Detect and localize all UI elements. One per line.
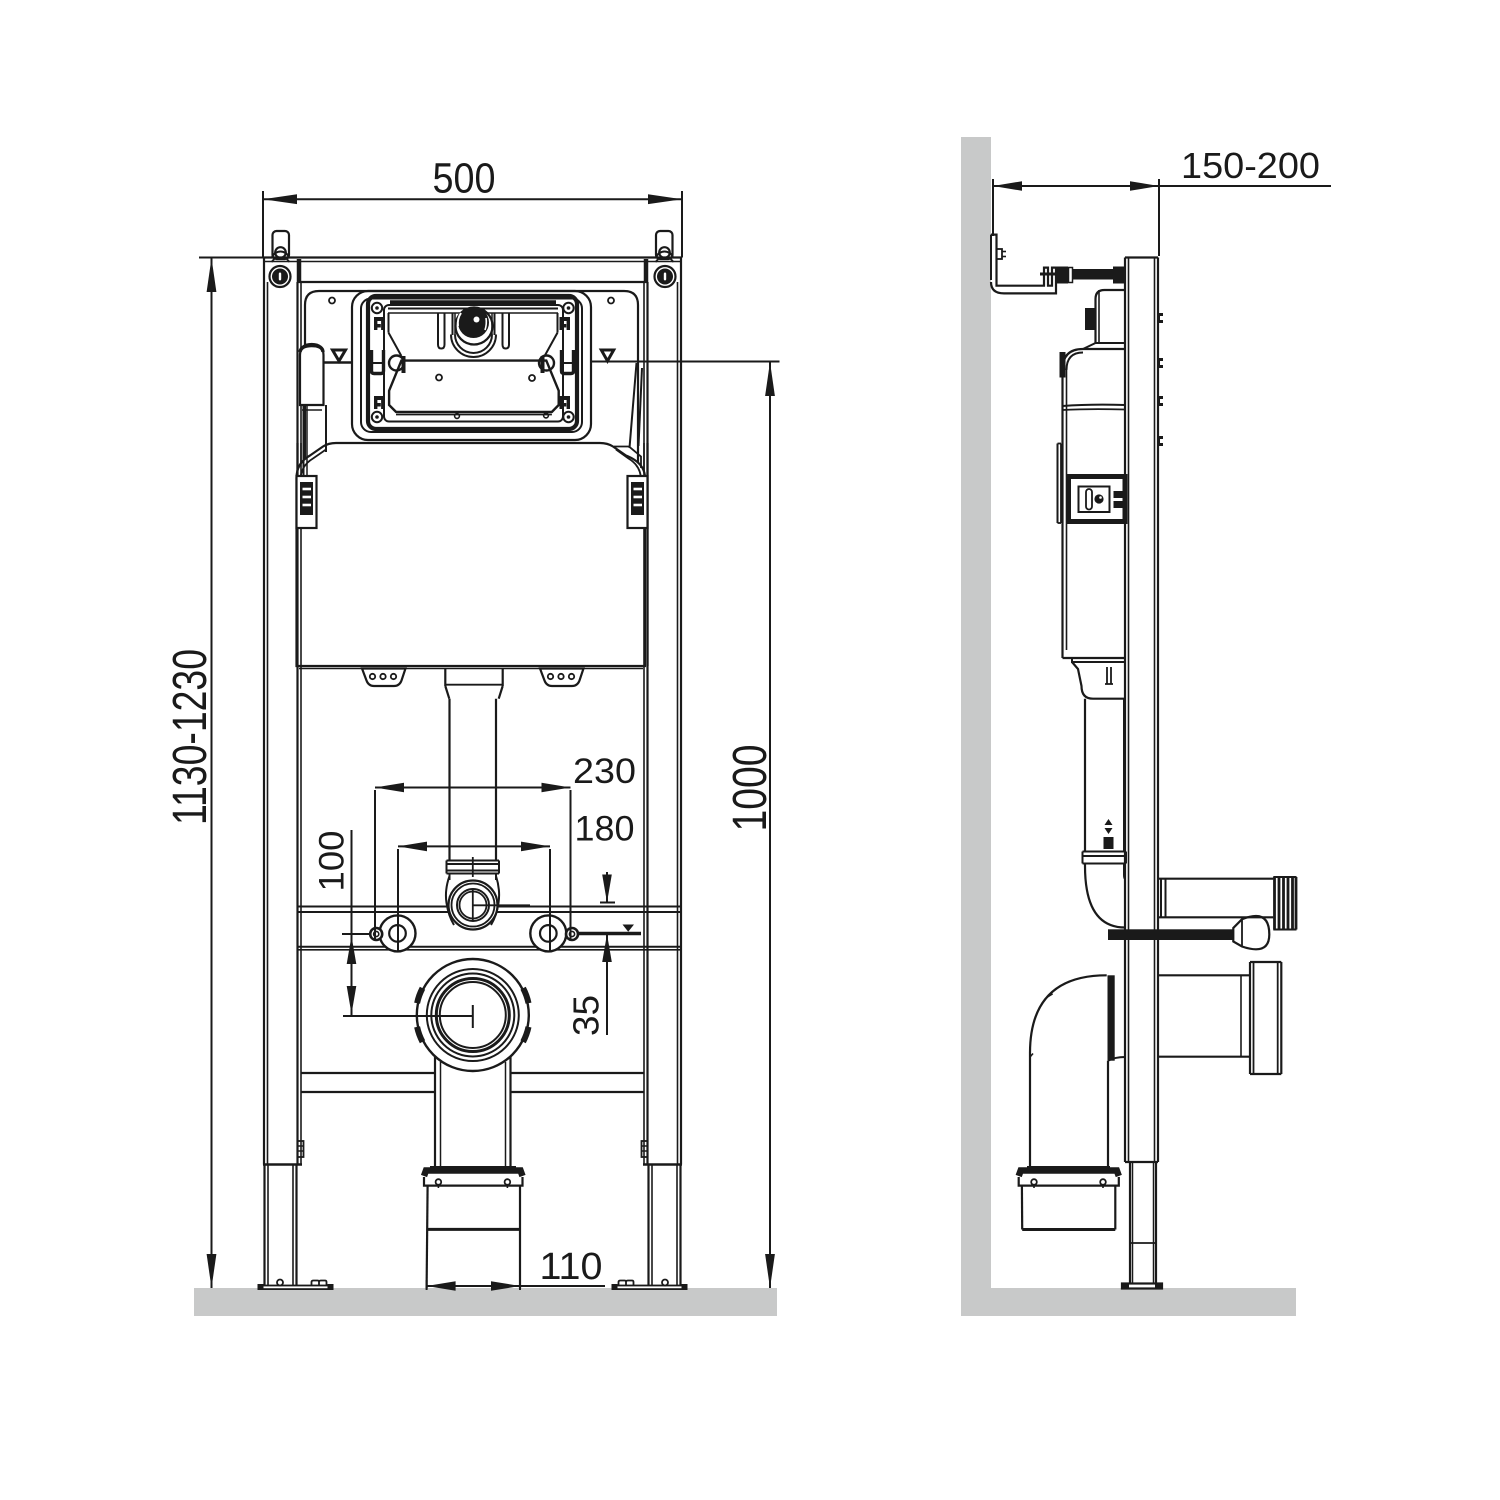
svg-text:150-200: 150-200 (1181, 145, 1320, 186)
svg-text:1000: 1000 (724, 745, 777, 832)
svg-text:110: 110 (540, 1246, 603, 1288)
svg-text:500: 500 (433, 155, 496, 203)
svg-text:1130-1230: 1130-1230 (164, 649, 217, 825)
svg-text:35: 35 (566, 995, 607, 1036)
svg-text:100: 100 (313, 831, 352, 892)
svg-text:180: 180 (575, 810, 635, 849)
svg-text:230: 230 (573, 752, 636, 791)
